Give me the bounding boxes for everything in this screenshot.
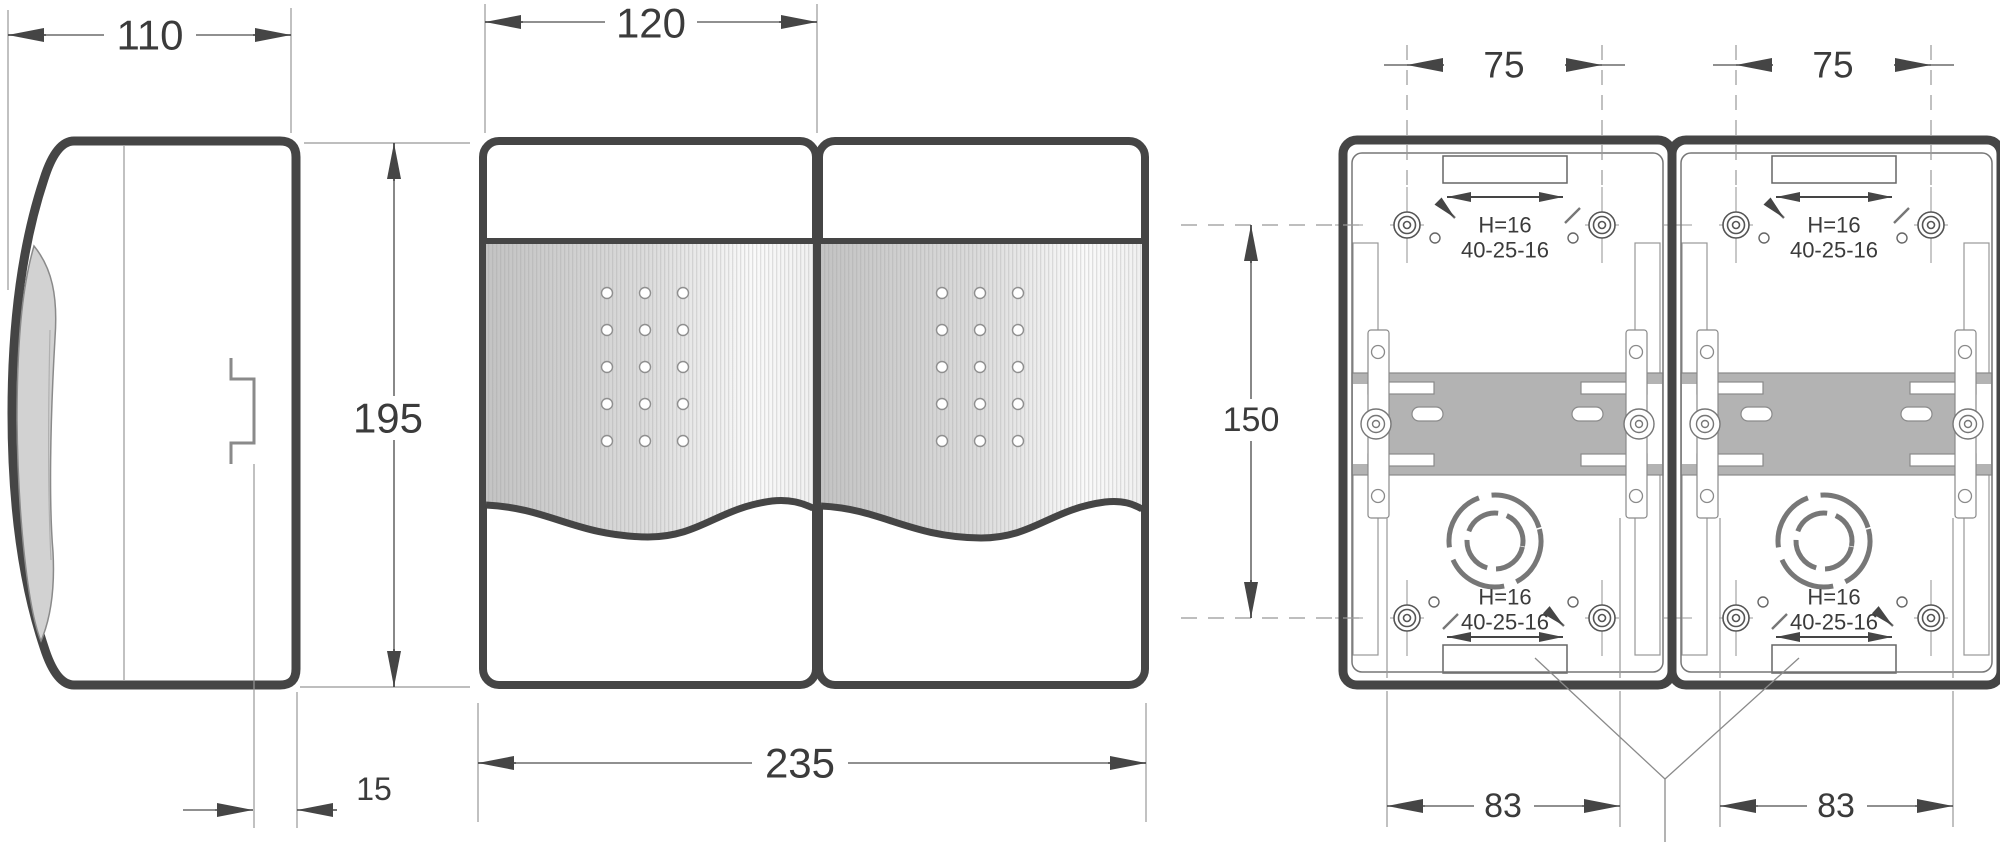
technical-drawing-page: H=16 40-25-16 H=16 40-25-16 [0,0,2000,843]
front-view [483,141,1145,685]
dim-15-label: 15 [356,771,392,807]
dim-83-label: 83 [1484,787,1522,825]
enclosure-dimensional-drawing: H=16 40-25-16 H=16 40-25-16 [0,0,2000,843]
dim-83-label: 83 [1817,787,1855,825]
dim-120-label: 120 [616,0,686,47]
dim-235-label: 235 [765,740,835,787]
back-view-left [1335,140,1672,685]
dimension-front-total-width: 235 [478,703,1146,822]
dimension-module-width: 120 [485,0,817,133]
dim-110-label: 110 [117,12,184,59]
dim-75-label: 75 [1812,45,1853,86]
back-view-right [1664,140,2000,685]
dimension-overall-height: 195 [300,143,470,687]
dim-195-label: 195 [353,395,423,442]
dimension-knockout-spacing-83-right: 83 [1720,786,1953,826]
dimension-mount-spacing-150: 150 [1181,225,1364,618]
dim-150-label: 150 [1223,401,1280,439]
dimension-knockout-spacing-83-left: 83 [1387,786,1620,826]
dim-75-label: 75 [1483,45,1524,86]
